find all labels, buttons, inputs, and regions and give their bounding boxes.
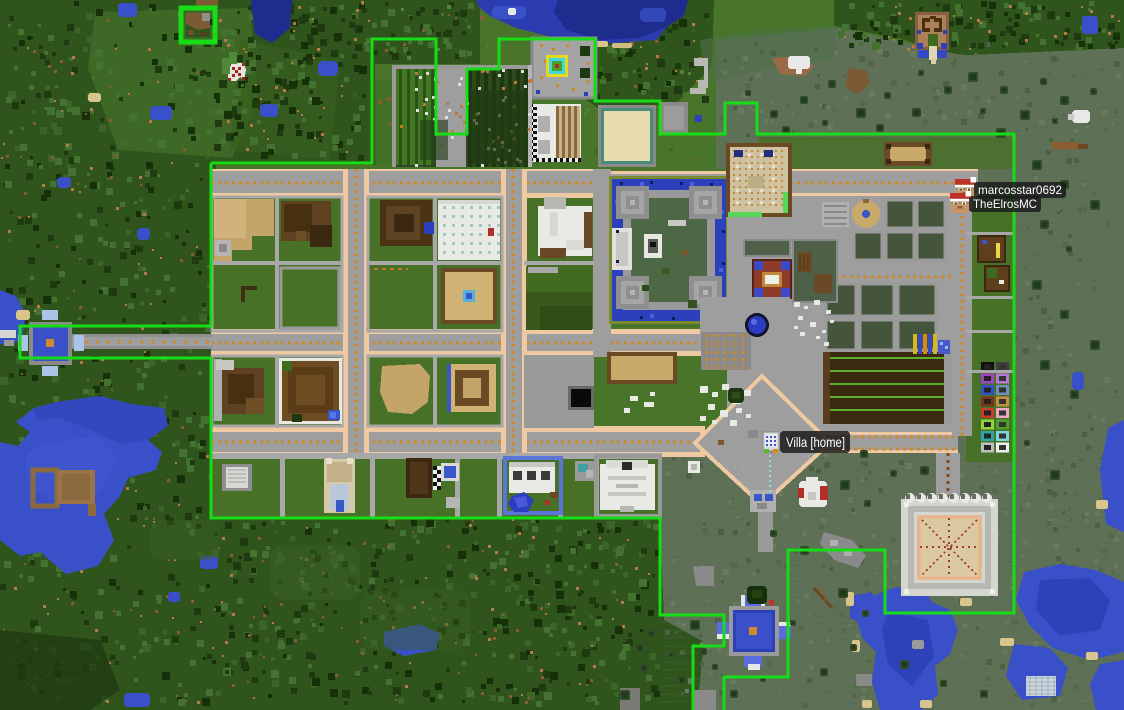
- svg-text:TheElrosMC: TheElrosMC: [973, 197, 1037, 211]
- svg-text:Villa [home]: Villa [home]: [786, 434, 845, 450]
- svg-text:marcosstar0692: marcosstar0692: [978, 183, 1062, 197]
